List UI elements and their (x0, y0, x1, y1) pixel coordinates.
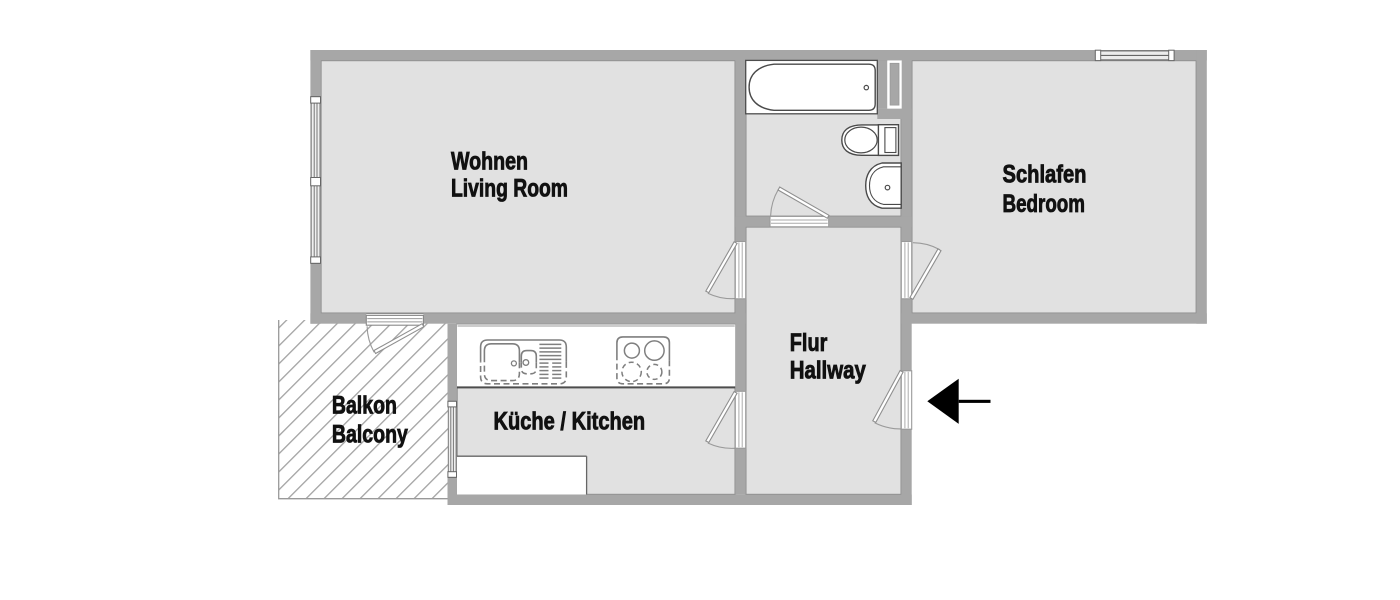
svg-text:Schlafen: Schlafen (1003, 160, 1087, 188)
svg-text:Flur: Flur (790, 329, 828, 357)
svg-text:Hallway: Hallway (790, 357, 866, 385)
svg-text:Wohnen: Wohnen (451, 147, 528, 175)
svg-text:Bedroom: Bedroom (1003, 190, 1086, 218)
svg-text:Küche / Kitchen: Küche / Kitchen (494, 407, 646, 435)
svg-text:Balcony: Balcony (332, 420, 408, 448)
svg-text:Living Room: Living Room (451, 174, 568, 202)
svg-text:Balkon: Balkon (332, 392, 397, 420)
